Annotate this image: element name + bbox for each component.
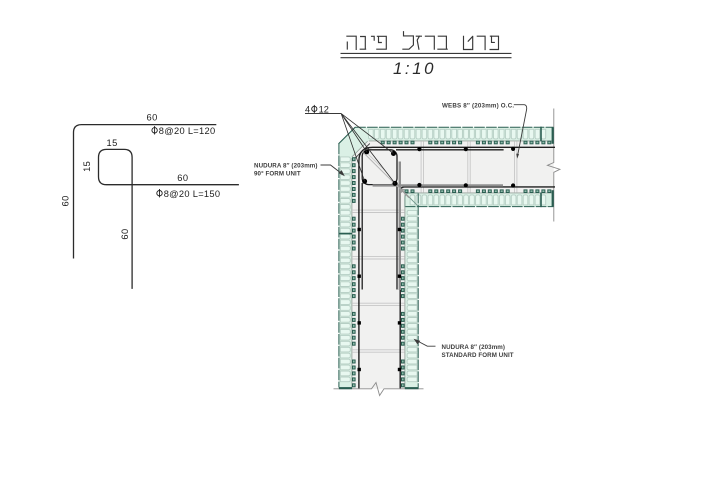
svg-text:15: 15 [82,161,92,172]
svg-text:60: 60 [147,113,158,123]
svg-text:8@20 L=120: 8@20 L=120 [159,126,216,136]
svg-text:WEBS 8″ (203mm) O.C.: WEBS 8″ (203mm) O.C. [442,103,514,110]
svg-text:NUDURA 8″ (203mm): NUDURA 8″ (203mm) [442,344,506,351]
svg-text:90° FORM UNIT: 90° FORM UNIT [254,170,301,177]
svg-text:8@20 L=150: 8@20 L=150 [164,189,221,199]
svg-text:NUDURA 8″ (203mm): NUDURA 8″ (203mm) [254,162,318,169]
svg-text:60: 60 [177,173,188,183]
svg-text:STANDARD FORM UNIT: STANDARD FORM UNIT [442,352,514,359]
svg-text:12: 12 [319,104,329,114]
svg-text:1:10: 1:10 [393,59,436,78]
svg-text:4: 4 [305,104,310,114]
svg-text:15: 15 [107,138,118,148]
svg-text:60: 60 [120,228,130,239]
svg-text:60: 60 [61,195,71,206]
